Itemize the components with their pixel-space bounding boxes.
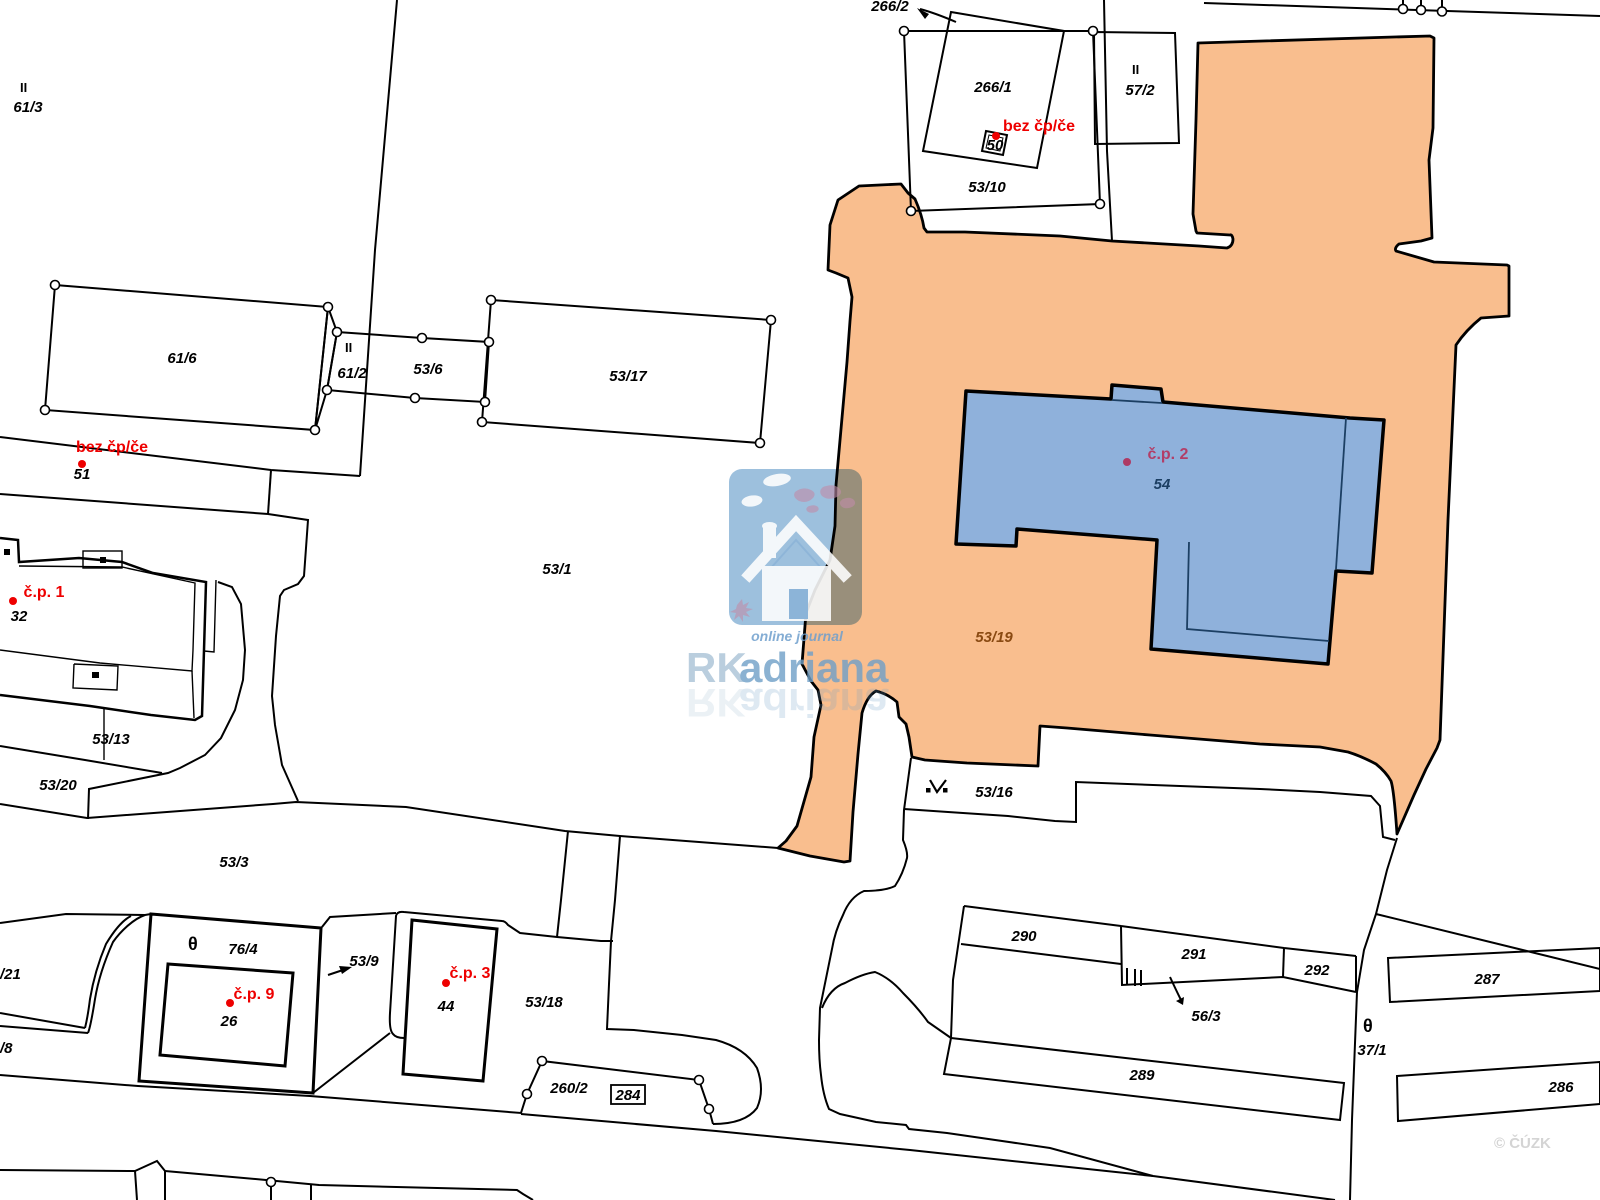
svg-text:θ: θ bbox=[188, 934, 198, 954]
svg-text:56/3: 56/3 bbox=[1191, 1008, 1221, 1025]
svg-text:286: 286 bbox=[1547, 1079, 1574, 1096]
svg-text:53/1: 53/1 bbox=[542, 561, 571, 578]
svg-text:61/2: 61/2 bbox=[337, 365, 367, 382]
svg-text:61/6: 61/6 bbox=[167, 350, 197, 367]
svg-text:bez čp/če: bez čp/če bbox=[76, 439, 148, 456]
svg-text:53/9: 53/9 bbox=[349, 953, 379, 970]
svg-text:č.p. 3: č.p. 3 bbox=[450, 965, 491, 982]
svg-text:289: 289 bbox=[1128, 1067, 1155, 1084]
svg-text:37/1: 37/1 bbox=[1357, 1042, 1386, 1059]
svg-text:/21: /21 bbox=[0, 966, 21, 983]
svg-text:/8: /8 bbox=[0, 1040, 13, 1057]
svg-text:53/3: 53/3 bbox=[219, 854, 249, 871]
svg-text:57/2: 57/2 bbox=[1125, 82, 1155, 99]
svg-text:RK: RK bbox=[686, 680, 747, 725]
svg-text:č.p. 9: č.p. 9 bbox=[234, 986, 275, 1003]
svg-text:266/1: 266/1 bbox=[973, 79, 1012, 96]
svg-text:290: 290 bbox=[1010, 928, 1037, 945]
svg-text:adriana: adriana bbox=[739, 680, 890, 725]
svg-text:291: 291 bbox=[1180, 946, 1206, 963]
svg-text:26: 26 bbox=[220, 1013, 238, 1030]
svg-text:53/16: 53/16 bbox=[975, 784, 1013, 801]
svg-text:44: 44 bbox=[437, 998, 455, 1015]
svg-text:bez čp/če: bez čp/če bbox=[1003, 118, 1075, 135]
svg-text:260/2: 260/2 bbox=[549, 1080, 588, 1097]
svg-text:č.p. 1: č.p. 1 bbox=[24, 584, 65, 601]
svg-text:53/13: 53/13 bbox=[92, 731, 130, 748]
svg-text:284: 284 bbox=[614, 1087, 641, 1104]
svg-text:266/2: 266/2 bbox=[870, 0, 909, 15]
svg-text:53/6: 53/6 bbox=[413, 361, 443, 378]
svg-text:č.p. 2: č.p. 2 bbox=[1148, 446, 1189, 463]
svg-text:II: II bbox=[345, 340, 352, 355]
svg-text:61/3: 61/3 bbox=[13, 99, 43, 116]
svg-text:287: 287 bbox=[1473, 971, 1500, 988]
svg-text:online journal: online journal bbox=[751, 628, 844, 644]
svg-text:53/18: 53/18 bbox=[525, 994, 563, 1011]
svg-text:51: 51 bbox=[74, 466, 91, 483]
svg-text:32: 32 bbox=[11, 608, 28, 625]
svg-text:II: II bbox=[1132, 62, 1139, 77]
svg-text:© ČÚZK: © ČÚZK bbox=[1494, 1134, 1551, 1152]
svg-text:53/19: 53/19 bbox=[975, 629, 1013, 646]
svg-text:76/4: 76/4 bbox=[228, 941, 258, 958]
svg-text:θ: θ bbox=[1363, 1016, 1373, 1036]
svg-text:53/17: 53/17 bbox=[609, 368, 647, 385]
svg-text:53/20: 53/20 bbox=[39, 777, 77, 794]
svg-text:292: 292 bbox=[1303, 962, 1330, 979]
svg-text:II: II bbox=[20, 80, 27, 95]
svg-text:54: 54 bbox=[1154, 476, 1171, 493]
svg-text:53/10: 53/10 bbox=[968, 179, 1006, 196]
